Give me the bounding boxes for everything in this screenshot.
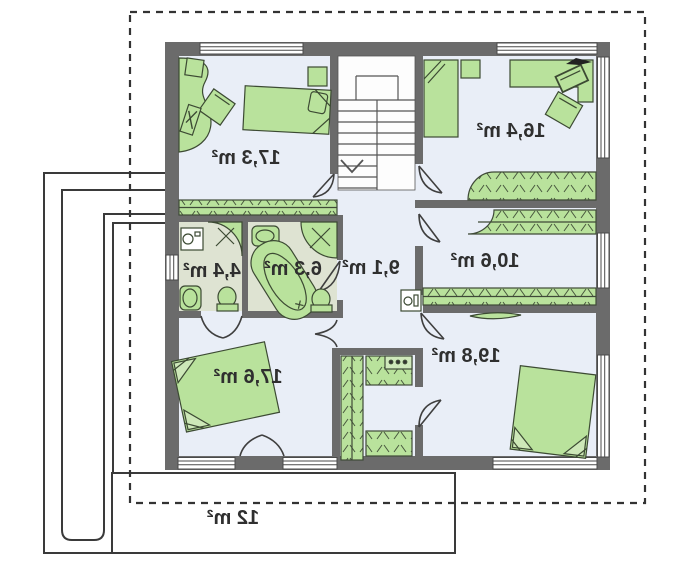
room-label-balcony: 12 m²: [207, 507, 260, 529]
balcony: [112, 473, 455, 553]
room-label-10-6: 10,6 m²: [450, 250, 519, 272]
window: [598, 233, 610, 288]
washing-machine: [181, 228, 203, 250]
closet-wardrobe: [366, 431, 412, 456]
closet-wardrobe: [341, 356, 363, 460]
desk-item: [185, 58, 204, 77]
room-label-17-6: 17,6 m²: [213, 366, 282, 388]
window: [283, 458, 337, 470]
room-label-19-8: 19,8 m²: [431, 345, 500, 367]
window: [598, 355, 610, 457]
bed: [510, 366, 596, 459]
staircase: [338, 56, 415, 190]
floor-plan-page: 17,3 m² 16,4 m² 4,4 m² 6,3 m² 9,1 m² 10,…: [0, 0, 700, 575]
nightstand: [461, 60, 480, 78]
room-label-16-4: 16,4 m²: [476, 120, 545, 142]
hall-cabinet: [401, 290, 421, 311]
room-label-6-3: 6,3 m²: [264, 258, 322, 280]
bed: [243, 86, 331, 134]
floor-plan: 17,3 m² 16,4 m² 4,4 m² 6,3 m² 9,1 m² 10,…: [0, 0, 700, 575]
window: [166, 255, 178, 280]
nightstand: [308, 67, 327, 86]
drawer-unit: [385, 356, 412, 369]
window: [178, 458, 235, 470]
sink: [180, 286, 201, 310]
bed: [424, 60, 458, 137]
wardrobe: [179, 200, 337, 215]
room-label-17-3: 17,3 m²: [211, 147, 280, 169]
room-label-4-4: 4,4 m²: [183, 260, 241, 282]
wardrobe: [423, 288, 596, 305]
window: [497, 43, 597, 54]
wardrobe: [468, 172, 596, 200]
window: [598, 57, 610, 158]
room-label-9-1: 9,1 m²: [342, 257, 400, 279]
window: [200, 43, 303, 54]
pillow: [308, 91, 329, 114]
window: [493, 458, 597, 470]
